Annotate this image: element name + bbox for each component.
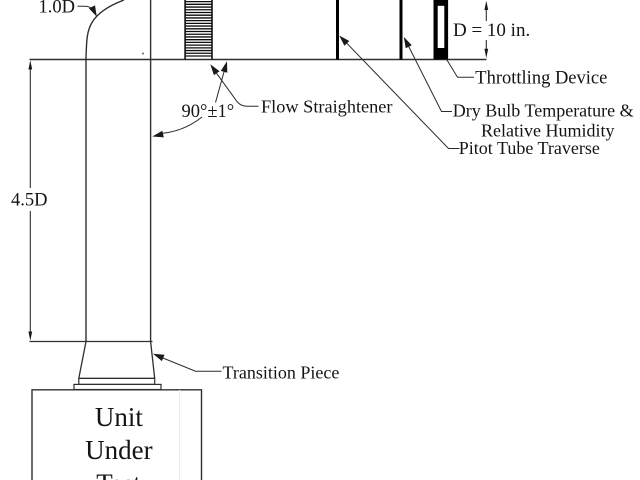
svg-text:Dry Bulb Temperature &: Dry Bulb Temperature & (453, 101, 634, 121)
svg-text:D = 10 in.: D = 10 in. (453, 20, 530, 41)
svg-text:4.5D: 4.5D (11, 191, 48, 211)
svg-text:Pitot Tube Traverse: Pitot Tube Traverse (459, 138, 600, 158)
svg-text:1.0D: 1.0D (39, 0, 76, 17)
svg-text:Throttling Device: Throttling Device (475, 69, 607, 89)
svg-text:Unit: Unit (95, 402, 144, 432)
svg-text:Test: Test (96, 468, 141, 480)
svg-text:Under: Under (85, 435, 152, 465)
svg-text:90°±1°: 90°±1° (182, 102, 235, 122)
svg-text:Flow Straightener: Flow Straightener (261, 97, 393, 117)
svg-text:Transition Piece: Transition Piece (223, 363, 340, 383)
